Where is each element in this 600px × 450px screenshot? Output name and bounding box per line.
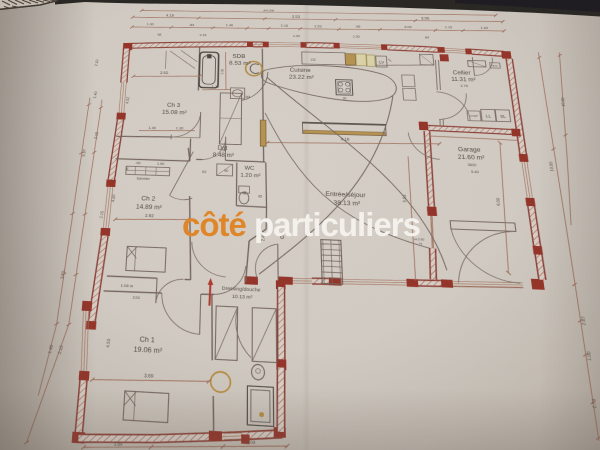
svg-text:1.00: 1.00 — [353, 35, 361, 39]
svg-text:1.05: 1.05 — [220, 68, 225, 74]
svg-text:.84: .84 — [189, 23, 194, 27]
svg-text:2.15: 2.15 — [281, 24, 289, 28]
svg-text:23.22 m²: 23.22 m² — [289, 74, 314, 81]
svg-text:14.89 m²: 14.89 m² — [136, 204, 163, 212]
svg-text:1.10: 1.10 — [444, 25, 452, 29]
svg-text:38.13 m²: 38.13 m² — [333, 200, 360, 208]
svg-text:1.39: 1.39 — [148, 126, 156, 130]
svg-text:3620: 3620 — [467, 163, 477, 168]
svg-text:8.53 m²: 8.53 m² — [229, 61, 251, 67]
svg-text:4.18: 4.18 — [341, 137, 350, 142]
svg-text:.99: .99 — [135, 161, 141, 166]
svg-text:ht: ht — [419, 242, 422, 246]
svg-text:1.00: 1.00 — [586, 351, 592, 361]
svg-text:Ch 3: Ch 3 — [167, 103, 180, 110]
svg-text:40: 40 — [224, 168, 229, 173]
svg-text:1.00: 1.00 — [147, 22, 154, 26]
svg-text:3.05: 3.05 — [421, 17, 430, 21]
svg-text:Cuisine: Cuisine — [290, 68, 311, 75]
svg-text:5.53: 5.53 — [402, 194, 407, 202]
svg-text:2.10: 2.10 — [94, 59, 100, 66]
svg-text:14.59: 14.59 — [263, 8, 274, 13]
svg-text:1.40: 1.40 — [92, 91, 98, 98]
svg-text:10.00: 10.00 — [560, 97, 566, 107]
svg-text:98: 98 — [157, 33, 161, 37]
svg-text:3.00: 3.00 — [404, 25, 412, 29]
svg-text:1.40: 1.40 — [480, 26, 488, 30]
svg-text:Dgt: Dgt — [218, 145, 228, 152]
svg-text:8.48 m²: 8.48 m² — [213, 152, 235, 159]
svg-text:2.15: 2.15 — [93, 132, 99, 140]
svg-text:1.70: 1.70 — [212, 85, 220, 89]
svg-text:6.00: 6.00 — [495, 198, 501, 206]
svg-text:2.92: 2.92 — [145, 213, 154, 218]
svg-text:2.15: 2.15 — [57, 345, 64, 355]
svg-text:SL: SL — [500, 114, 506, 119]
svg-text:4.19: 4.19 — [166, 14, 174, 18]
svg-text:21.60 m²: 21.60 m² — [457, 154, 485, 162]
svg-text:2.67: 2.67 — [581, 316, 587, 326]
svg-text:2.04: 2.04 — [246, 439, 255, 445]
svg-text:10.00: 10.00 — [548, 161, 554, 171]
svg-text:2.45: 2.45 — [260, 233, 266, 242]
svg-text:90: 90 — [246, 95, 251, 99]
svg-text:3.69: 3.69 — [144, 373, 154, 379]
svg-text:3.70: 3.70 — [59, 270, 66, 279]
svg-text:congel: congel — [470, 115, 478, 117]
svg-text:1.04 m: 1.04 m — [120, 283, 133, 289]
svg-text:Ch 2: Ch 2 — [141, 196, 155, 203]
svg-text:45: 45 — [258, 194, 263, 199]
svg-text:15.08 m²: 15.08 m² — [162, 110, 187, 117]
svg-text:11.31 m²: 11.31 m² — [451, 77, 476, 84]
svg-text:1.53: 1.53 — [314, 24, 322, 28]
svg-text:LL: LL — [486, 114, 492, 118]
svg-text:1.40: 1.40 — [226, 23, 233, 27]
svg-text:90: 90 — [125, 166, 130, 170]
svg-text:2.75: 2.75 — [460, 84, 468, 88]
svg-text:5.40: 5.40 — [471, 170, 480, 175]
svg-text:4.02: 4.02 — [125, 97, 131, 104]
svg-text:WC: WC — [245, 165, 256, 172]
svg-text:2.15: 2.15 — [99, 210, 105, 218]
svg-text:Entrée/séjour: Entrée/séjour — [325, 191, 366, 199]
svg-text:1.40: 1.40 — [47, 344, 54, 354]
svg-text:SDB: SDB — [232, 54, 245, 60]
svg-text:Garage: Garage — [458, 147, 481, 154]
svg-text:4.50: 4.50 — [111, 194, 117, 202]
svg-text:2.15: 2.15 — [200, 33, 207, 37]
svg-text:Cellier: Cellier — [453, 70, 472, 77]
svg-text:Sommier: Sommier — [136, 176, 150, 181]
svg-text:.96: .96 — [355, 25, 361, 29]
svg-text:10.13 m²: 10.13 m² — [232, 293, 253, 300]
svg-text:19.06 m²: 19.06 m² — [133, 346, 162, 356]
svg-text:93: 93 — [202, 170, 207, 175]
svg-text:2.62: 2.62 — [160, 71, 168, 75]
svg-text:LV: LV — [379, 60, 385, 64]
svg-text:3.89: 3.89 — [114, 441, 123, 447]
svg-text:1.90: 1.90 — [157, 161, 165, 166]
svg-text:4.53: 4.53 — [105, 338, 111, 348]
svg-text:Ch 1: Ch 1 — [139, 336, 155, 345]
svg-text:B.O: B.O — [492, 65, 498, 68]
svg-text:132: 132 — [310, 58, 316, 62]
svg-text:2.04: 2.04 — [133, 295, 141, 300]
svg-text:1.30: 1.30 — [176, 126, 184, 130]
svg-text:95: 95 — [242, 190, 247, 195]
svg-text:2.53: 2.53 — [292, 15, 300, 19]
svg-text:1.73: 1.73 — [591, 398, 598, 409]
svg-text:84: 84 — [425, 36, 430, 40]
svg-text:1.40: 1.40 — [293, 34, 300, 38]
svg-text:5.57: 5.57 — [81, 149, 87, 157]
svg-text:1.20 m²: 1.20 m² — [240, 172, 261, 179]
